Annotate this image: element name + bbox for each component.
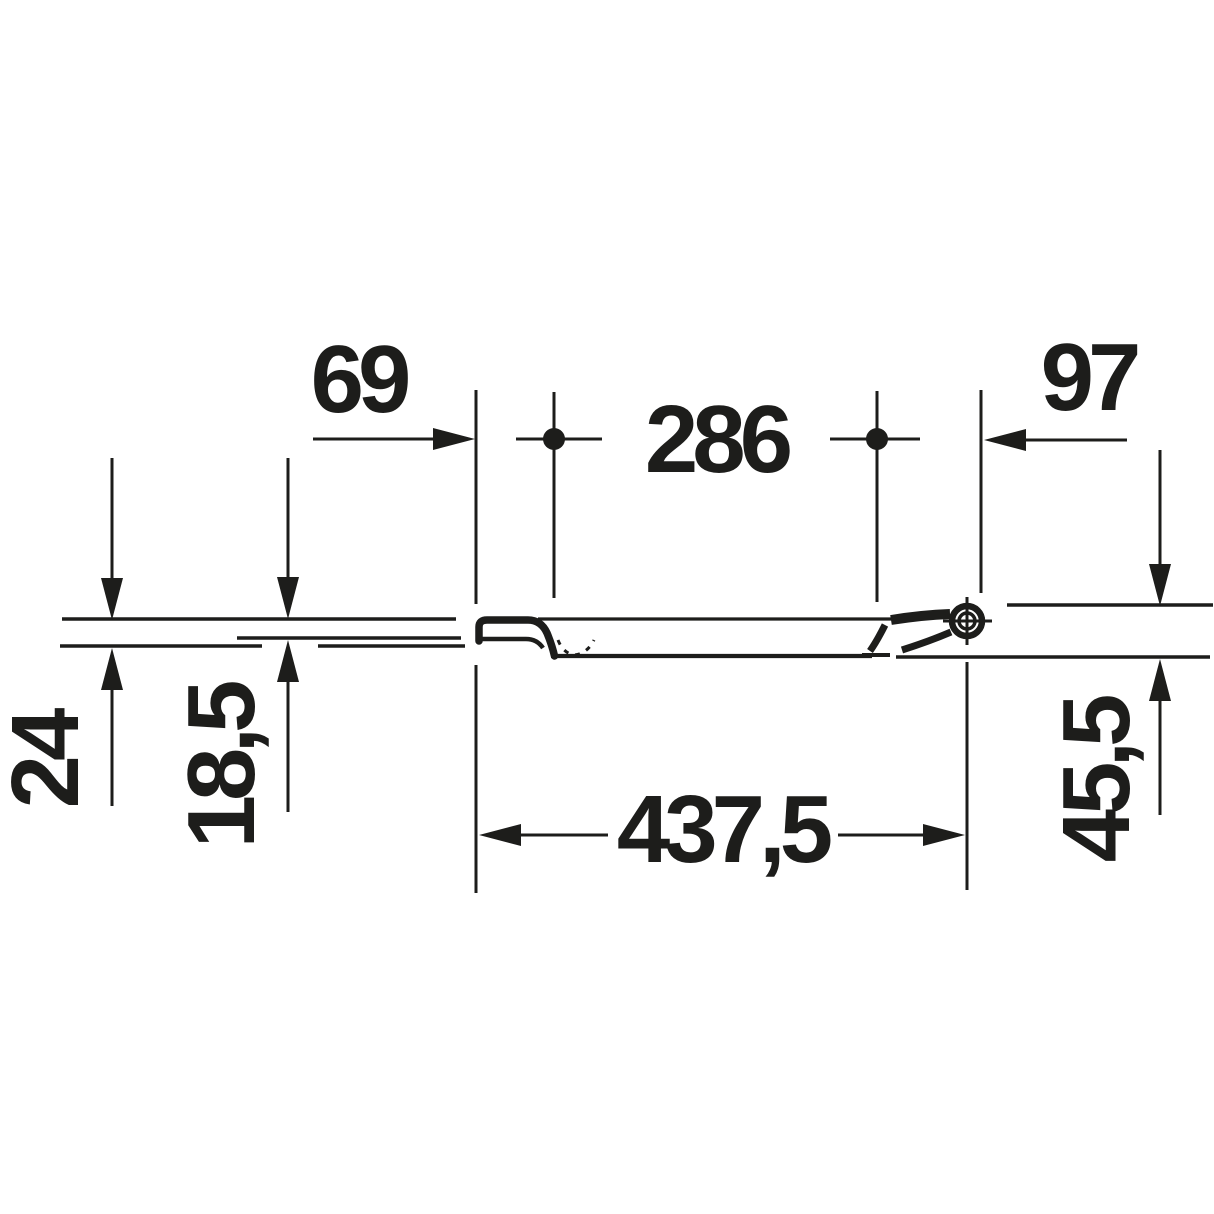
hinge-arm-left-drop bbox=[870, 625, 885, 651]
dimension-45-5 bbox=[1149, 450, 1171, 815]
dim-label-286: 286 bbox=[645, 392, 787, 488]
seat-profile-linework bbox=[0, 0, 1214, 1214]
dim-437-5-left-arrowhead bbox=[479, 824, 521, 846]
dim-label-437-5: 437,5 bbox=[617, 782, 827, 878]
dim-97-arrowhead bbox=[984, 429, 1026, 451]
hinge-arm-top bbox=[891, 614, 950, 620]
dimension-drawing: 69 286 97 437,5 24 18,5 45,5 bbox=[0, 0, 1214, 1214]
hinge-arm-underside bbox=[902, 632, 951, 650]
dim-label-97: 97 bbox=[1041, 330, 1136, 426]
dim-24-up-arrowhead bbox=[101, 648, 123, 690]
left-profile-lines bbox=[60, 619, 465, 646]
dim-24-down-arrowhead bbox=[101, 578, 123, 620]
dim-18-5-down-arrowhead bbox=[277, 577, 299, 619]
dim-label-18-5: 18,5 bbox=[174, 686, 270, 849]
dim-18-5-up-arrowhead bbox=[277, 640, 299, 682]
dimension-18-5 bbox=[277, 458, 299, 812]
dim-437-5-right-arrowhead bbox=[923, 824, 965, 846]
dim-label-24: 24 bbox=[0, 714, 94, 809]
dim-45-5-up-arrowhead bbox=[1149, 659, 1171, 701]
dimension-24 bbox=[101, 458, 123, 806]
dimension-97 bbox=[984, 429, 1127, 451]
dim-label-69: 69 bbox=[311, 332, 406, 428]
dim-69-arrowhead bbox=[433, 428, 475, 450]
seat-dish-profile bbox=[479, 597, 992, 656]
dim-45-5-down-arrowhead bbox=[1149, 564, 1171, 606]
dim-label-45-5: 45,5 bbox=[1049, 700, 1145, 863]
front-bumper-underside bbox=[482, 639, 543, 648]
hidden-trough-dashed-arc bbox=[558, 640, 594, 655]
